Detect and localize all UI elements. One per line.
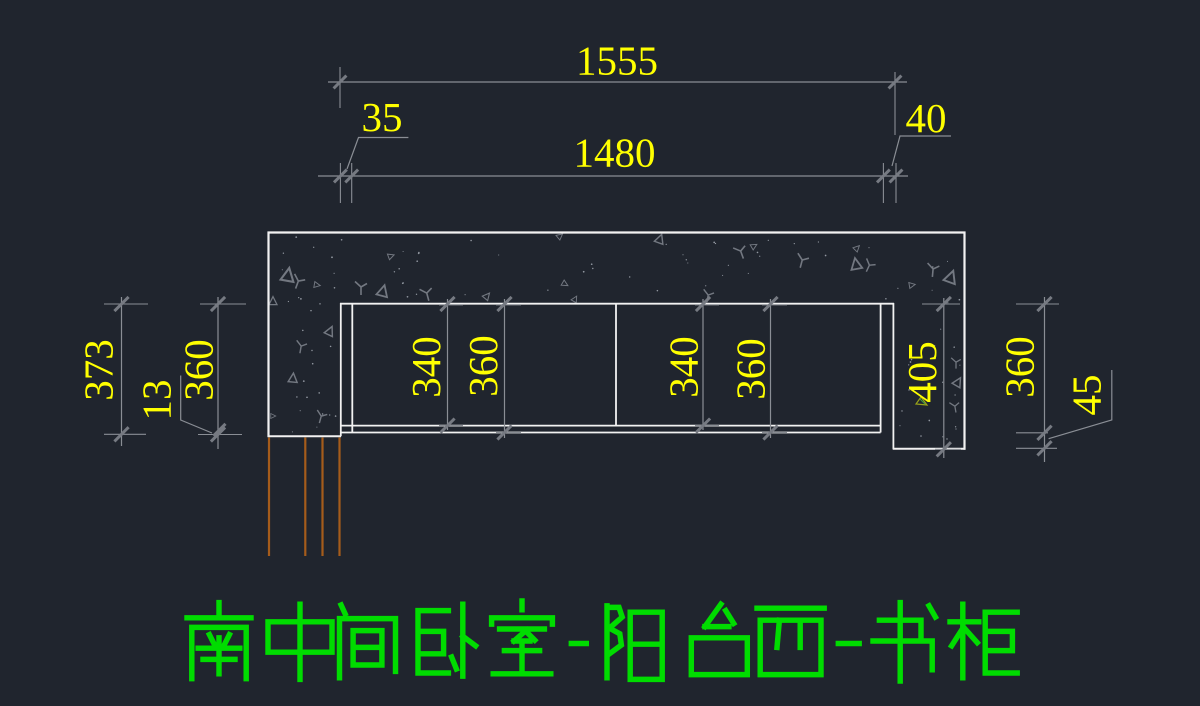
svg-text:1480: 1480 [574, 130, 656, 176]
svg-text:340: 340 [403, 336, 449, 398]
svg-text:35: 35 [362, 94, 403, 140]
svg-text:45: 45 [1064, 375, 1110, 416]
svg-text:373: 373 [76, 339, 122, 401]
svg-text:360: 360 [997, 336, 1043, 398]
svg-text:360: 360 [460, 335, 506, 397]
svg-text:13: 13 [134, 380, 180, 421]
svg-text:340: 340 [661, 336, 707, 398]
svg-text:360: 360 [728, 338, 774, 400]
svg-text:405: 405 [899, 341, 945, 403]
svg-text:1555: 1555 [576, 38, 658, 84]
svg-text:360: 360 [176, 339, 222, 401]
svg-text:40: 40 [906, 95, 947, 141]
